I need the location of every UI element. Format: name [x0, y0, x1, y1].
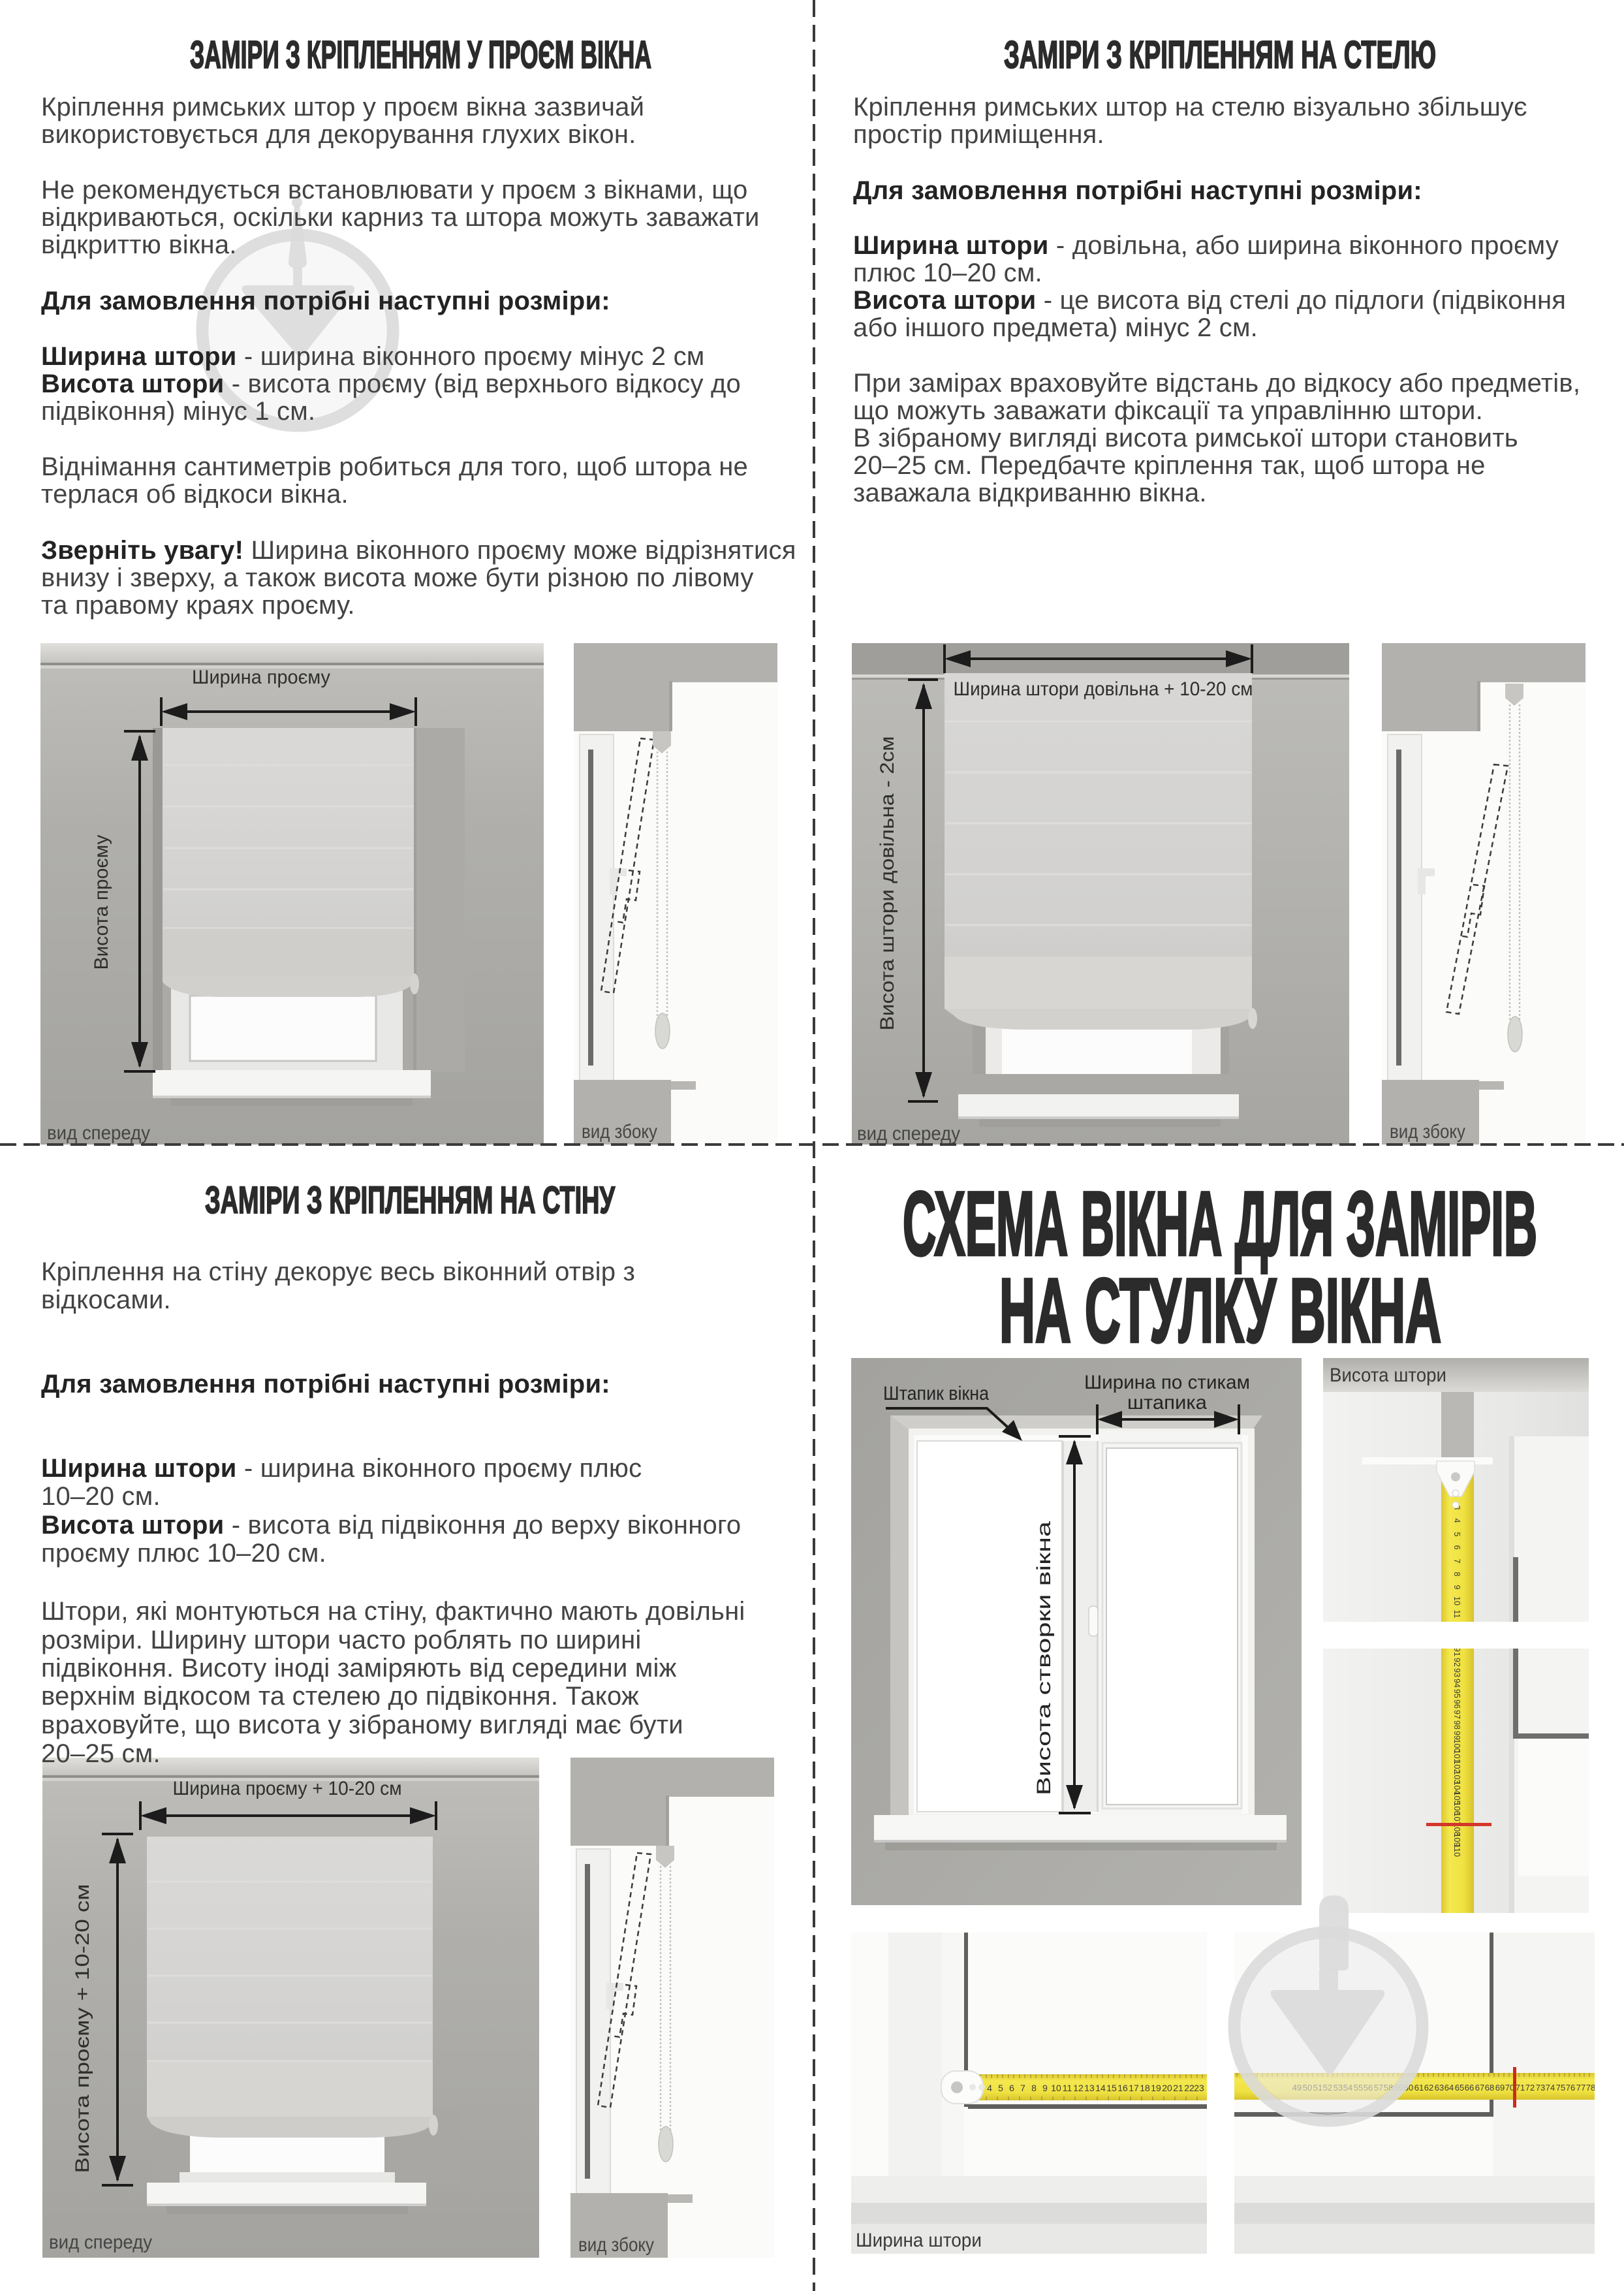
svg-text:17: 17: [1129, 2083, 1139, 2093]
svg-text:21: 21: [1173, 2083, 1183, 2093]
svg-text:71: 71: [1516, 2083, 1525, 2093]
svg-text:вид спереду: вид спереду: [49, 2232, 152, 2253]
svg-text:98: 98: [1452, 1720, 1461, 1730]
svg-text:4: 4: [987, 2083, 992, 2093]
svg-text:94: 94: [1452, 1679, 1461, 1688]
svg-text:67: 67: [1475, 2083, 1484, 2093]
svg-text:15: 15: [1106, 2083, 1117, 2093]
svg-text:вид збоку: вид збоку: [1390, 1121, 1465, 1143]
svg-text:вид спереду: вид спереду: [857, 1123, 960, 1145]
svg-text:110: 110: [1452, 1844, 1461, 1857]
svg-text:Висота проєму + 10-20 см: Висота проєму + 10-20 см: [72, 1884, 93, 2173]
svg-text:вид збоку: вид збоку: [578, 2234, 654, 2256]
svg-text:95: 95: [1452, 1689, 1461, 1698]
svg-text:Висота проєму: Висота проєму: [91, 835, 112, 970]
svg-text:69: 69: [1495, 2083, 1505, 2093]
svg-text:72: 72: [1525, 2083, 1535, 2093]
svg-text:Ширина по стикам: Ширина по стикам: [1084, 1372, 1250, 1393]
svg-text:Висота створки вікна: Висота створки вікна: [1033, 1521, 1055, 1795]
svg-text:65: 65: [1455, 2083, 1464, 2093]
svg-text:78: 78: [1586, 2083, 1595, 2093]
svg-text:23: 23: [1194, 2083, 1204, 2093]
svg-text:20: 20: [1162, 2083, 1172, 2093]
svg-text:97: 97: [1452, 1710, 1461, 1719]
svg-text:73: 73: [1536, 2083, 1545, 2093]
svg-text:76: 76: [1566, 2083, 1575, 2093]
svg-text:Ширина штори: Ширина штори: [856, 2230, 982, 2251]
svg-text:22: 22: [1184, 2083, 1195, 2093]
svg-text:вид спереду: вид спереду: [47, 1122, 150, 1144]
svg-text:Висота штори довільна - 2см: Висота штори довільна - 2см: [877, 736, 898, 1031]
svg-text:8: 8: [1452, 1572, 1461, 1577]
svg-text:4: 4: [1452, 1519, 1461, 1523]
svg-text:11: 11: [1063, 2083, 1072, 2093]
svg-text:5: 5: [1452, 1532, 1461, 1537]
svg-text:91: 91: [1452, 1647, 1461, 1656]
svg-text:Ширина проєму + 10-20 см: Ширина проєму + 10-20 см: [173, 1778, 402, 1799]
svg-text:вид збоку: вид збоку: [582, 1121, 657, 1143]
svg-text:6: 6: [1452, 1545, 1461, 1550]
svg-text:75: 75: [1556, 2083, 1565, 2093]
svg-text:77: 77: [1576, 2083, 1585, 2093]
svg-text:5: 5: [998, 2083, 1003, 2093]
svg-text:64: 64: [1444, 2083, 1454, 2093]
svg-text:68: 68: [1485, 2083, 1494, 2093]
svg-text:93: 93: [1452, 1668, 1461, 1677]
svg-text:18: 18: [1140, 2083, 1150, 2093]
svg-text:14: 14: [1095, 2083, 1106, 2093]
svg-text:96: 96: [1452, 1699, 1461, 1709]
svg-text:9: 9: [1042, 2083, 1048, 2093]
svg-text:10: 10: [1051, 2083, 1061, 2093]
svg-text:7: 7: [1020, 2083, 1025, 2093]
svg-text:Висота штори: Висота штори: [1330, 1365, 1446, 1386]
svg-text:12: 12: [1073, 2083, 1084, 2093]
svg-text:13: 13: [1084, 2083, 1095, 2093]
svg-text:66: 66: [1465, 2083, 1474, 2093]
svg-text:11: 11: [1452, 1610, 1461, 1619]
svg-text:74: 74: [1546, 2083, 1555, 2093]
svg-text:19: 19: [1151, 2083, 1161, 2093]
svg-text:Штапик вікна: Штапик вікна: [883, 1383, 989, 1404]
svg-text:6: 6: [1009, 2083, 1014, 2093]
svg-text:Ширина штори довільна + 10-20: Ширина штори довільна + 10-20 см: [954, 678, 1253, 700]
svg-text:8: 8: [1031, 2083, 1037, 2093]
svg-text:7: 7: [1452, 1559, 1461, 1564]
svg-text:92: 92: [1452, 1658, 1461, 1667]
svg-text:9: 9: [1452, 1585, 1461, 1590]
svg-text:10: 10: [1452, 1596, 1461, 1605]
svg-text:Ширина проєму: Ширина проєму: [192, 667, 330, 688]
svg-text:16: 16: [1117, 2083, 1128, 2093]
svg-text:штапика: штапика: [1127, 1392, 1207, 1414]
